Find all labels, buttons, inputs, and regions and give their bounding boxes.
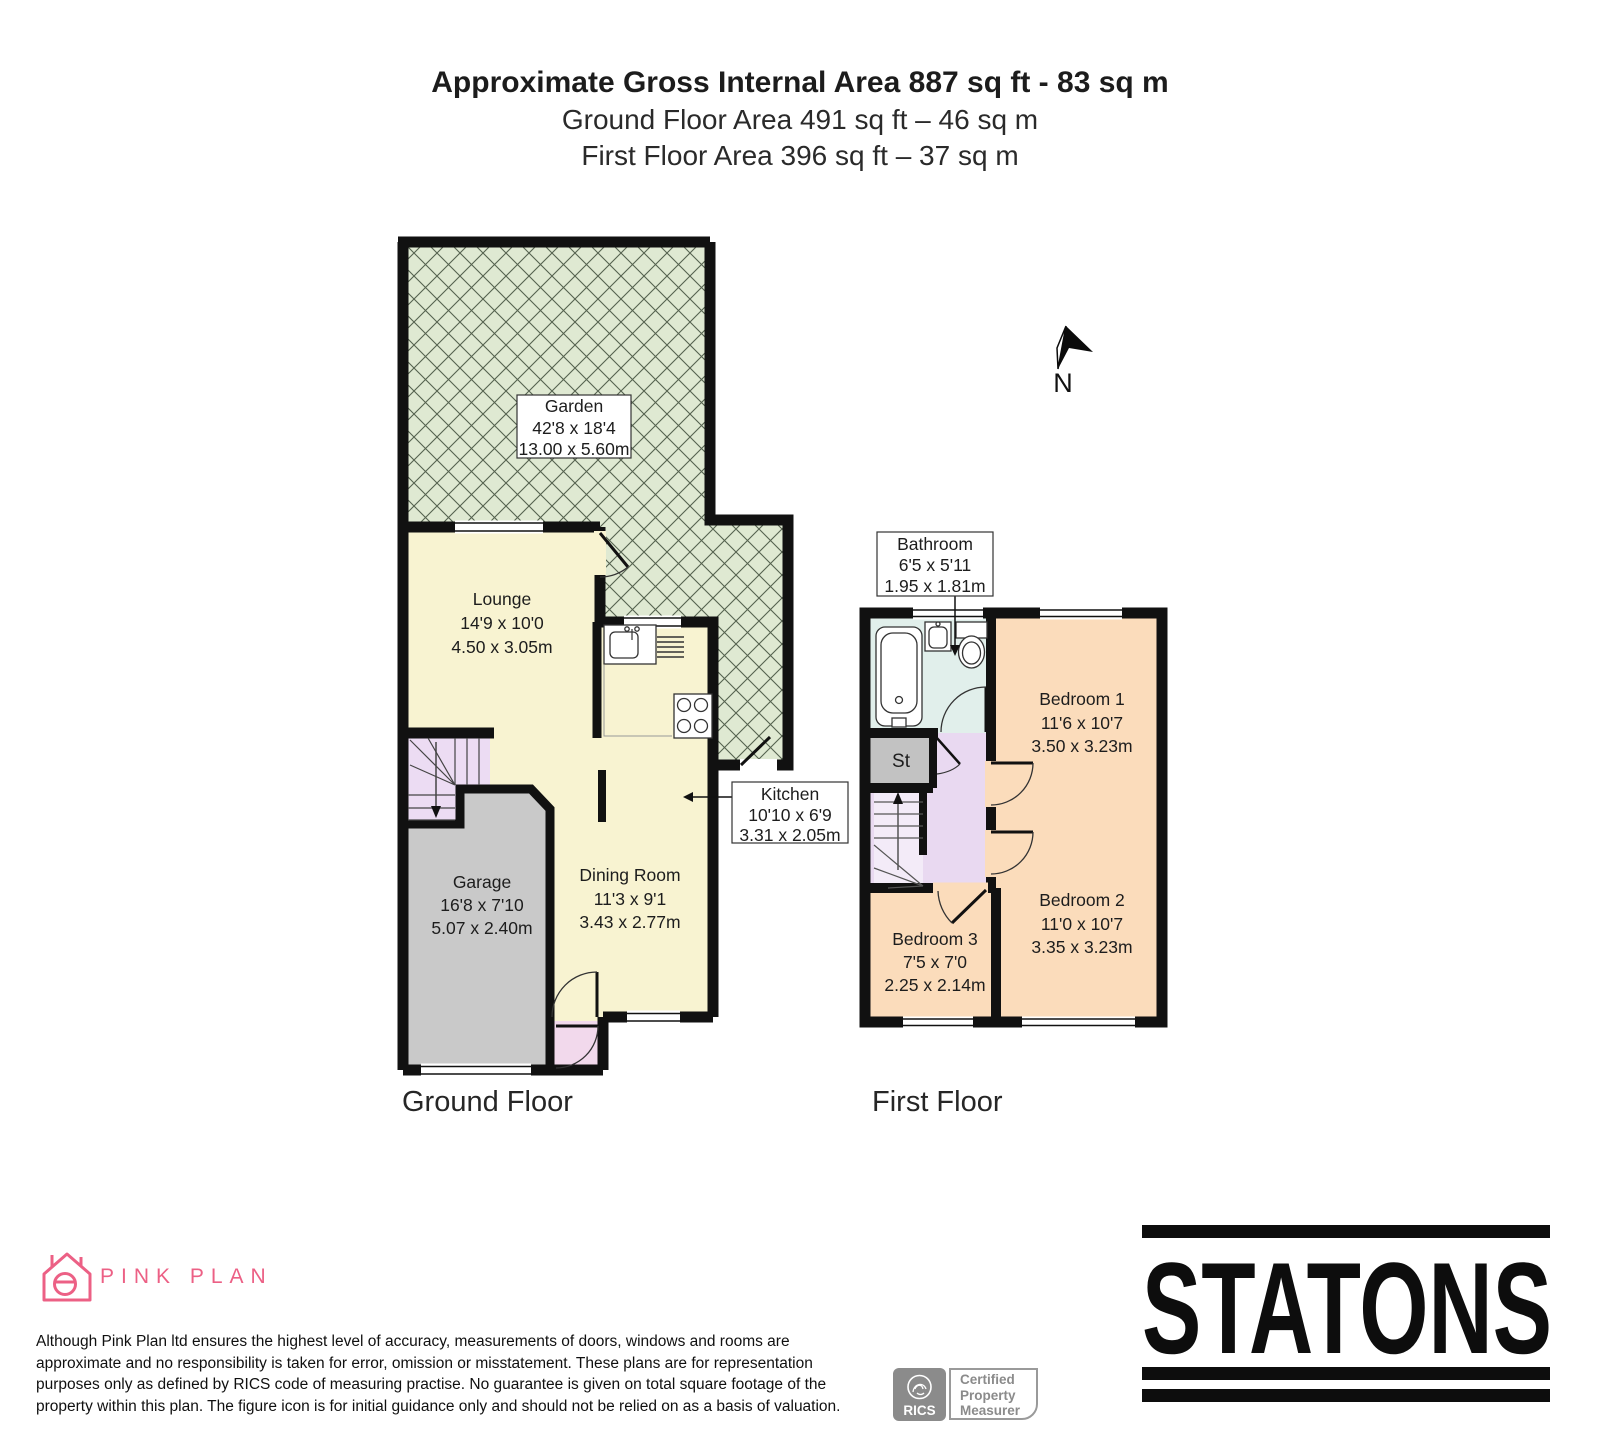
bedroom3-name: Bedroom 3 — [892, 929, 978, 949]
bathtub — [876, 627, 922, 726]
kitchen-metric: 3.31 x 2.05m — [739, 825, 840, 845]
bedroom1-metric: 3.50 x 3.23m — [1031, 736, 1132, 756]
kitchen-imperial: 10'10 x 6'9 — [748, 805, 832, 825]
bathroom-imperial: 6'5 x 5'11 — [899, 555, 972, 575]
dining-name: Dining Room — [579, 865, 680, 885]
statons-wordmark: STATONS — [1142, 1235, 1552, 1381]
disclaimer-line: approximate and no responsibility is tak… — [36, 1353, 886, 1375]
garage-imperial: 16'8 x 7'10 — [440, 895, 524, 915]
garden-name: Garden — [545, 396, 603, 416]
rics-crest-icon: RICS — [893, 1368, 946, 1421]
statons-logo: STATONS — [1142, 1225, 1552, 1402]
garage-metric: 5.07 x 2.40m — [431, 918, 532, 938]
ground-floor-plan — [398, 242, 788, 1077]
garden-metric: 13.00 x 5.60m — [519, 439, 630, 459]
rics-badge: RICS Certified Property Measurer — [893, 1368, 1038, 1421]
rics-cert-line: Property — [960, 1388, 1036, 1404]
garage-name: Garage — [453, 872, 511, 892]
disclaimer-line: Although Pink Plan ltd ensures the highe… — [36, 1331, 886, 1353]
bedroom1-name: Bedroom 1 — [1039, 689, 1125, 709]
dining-imperial: 11'3 x 9'1 — [594, 889, 667, 909]
pink-plan-house-icon — [44, 1254, 90, 1300]
north-arrow: N — [1053, 326, 1093, 398]
bathroom-name: Bathroom — [897, 534, 973, 554]
floorplan-canvas: Garden 42'8 x 18'4 13.00 x 5.60m Kitchen… — [0, 0, 1600, 1450]
kitchen-name: Kitchen — [761, 784, 819, 804]
bedroom2-metric: 3.35 x 3.23m — [1031, 937, 1132, 957]
lounge-name: Lounge — [473, 589, 531, 609]
rics-cert-line: Measurer — [960, 1403, 1036, 1419]
first-floor-label: First Floor — [872, 1086, 1003, 1119]
bedroom3-metric: 2.25 x 2.14m — [884, 975, 985, 995]
lounge-imperial: 14'9 x 10'0 — [460, 613, 544, 633]
pink-plan-wordmark: PINK PLAN — [100, 1265, 273, 1289]
disclaimer-line: property within this plan. The figure ic… — [36, 1396, 886, 1418]
garden-imperial: 42'8 x 18'4 — [532, 418, 616, 438]
bedroom2-name: Bedroom 2 — [1039, 890, 1125, 910]
rics-cert-box: Certified Property Measurer — [949, 1368, 1038, 1420]
dining-metric: 3.43 x 2.77m — [579, 912, 680, 932]
bedroom2-imperial: 11'0 x 10'7 — [1041, 914, 1123, 934]
storage-label: St — [892, 751, 911, 772]
disclaimer: Although Pink Plan ltd ensures the highe… — [36, 1331, 886, 1417]
bedroom1-imperial: 11'6 x 10'7 — [1041, 713, 1123, 733]
ground-floor-label: Ground Floor — [402, 1086, 573, 1119]
disclaimer-line: purposes only as defined by RICS code of… — [36, 1374, 886, 1396]
rics-cert-line: Certified — [960, 1372, 1036, 1388]
bedroom3-imperial: 7'5 x 7'0 — [903, 952, 967, 972]
lounge-metric: 4.50 x 3.05m — [451, 637, 552, 657]
north-label: N — [1053, 368, 1073, 398]
rics-label: RICS — [903, 1403, 935, 1418]
bathroom-metric: 1.95 x 1.81m — [884, 576, 985, 596]
